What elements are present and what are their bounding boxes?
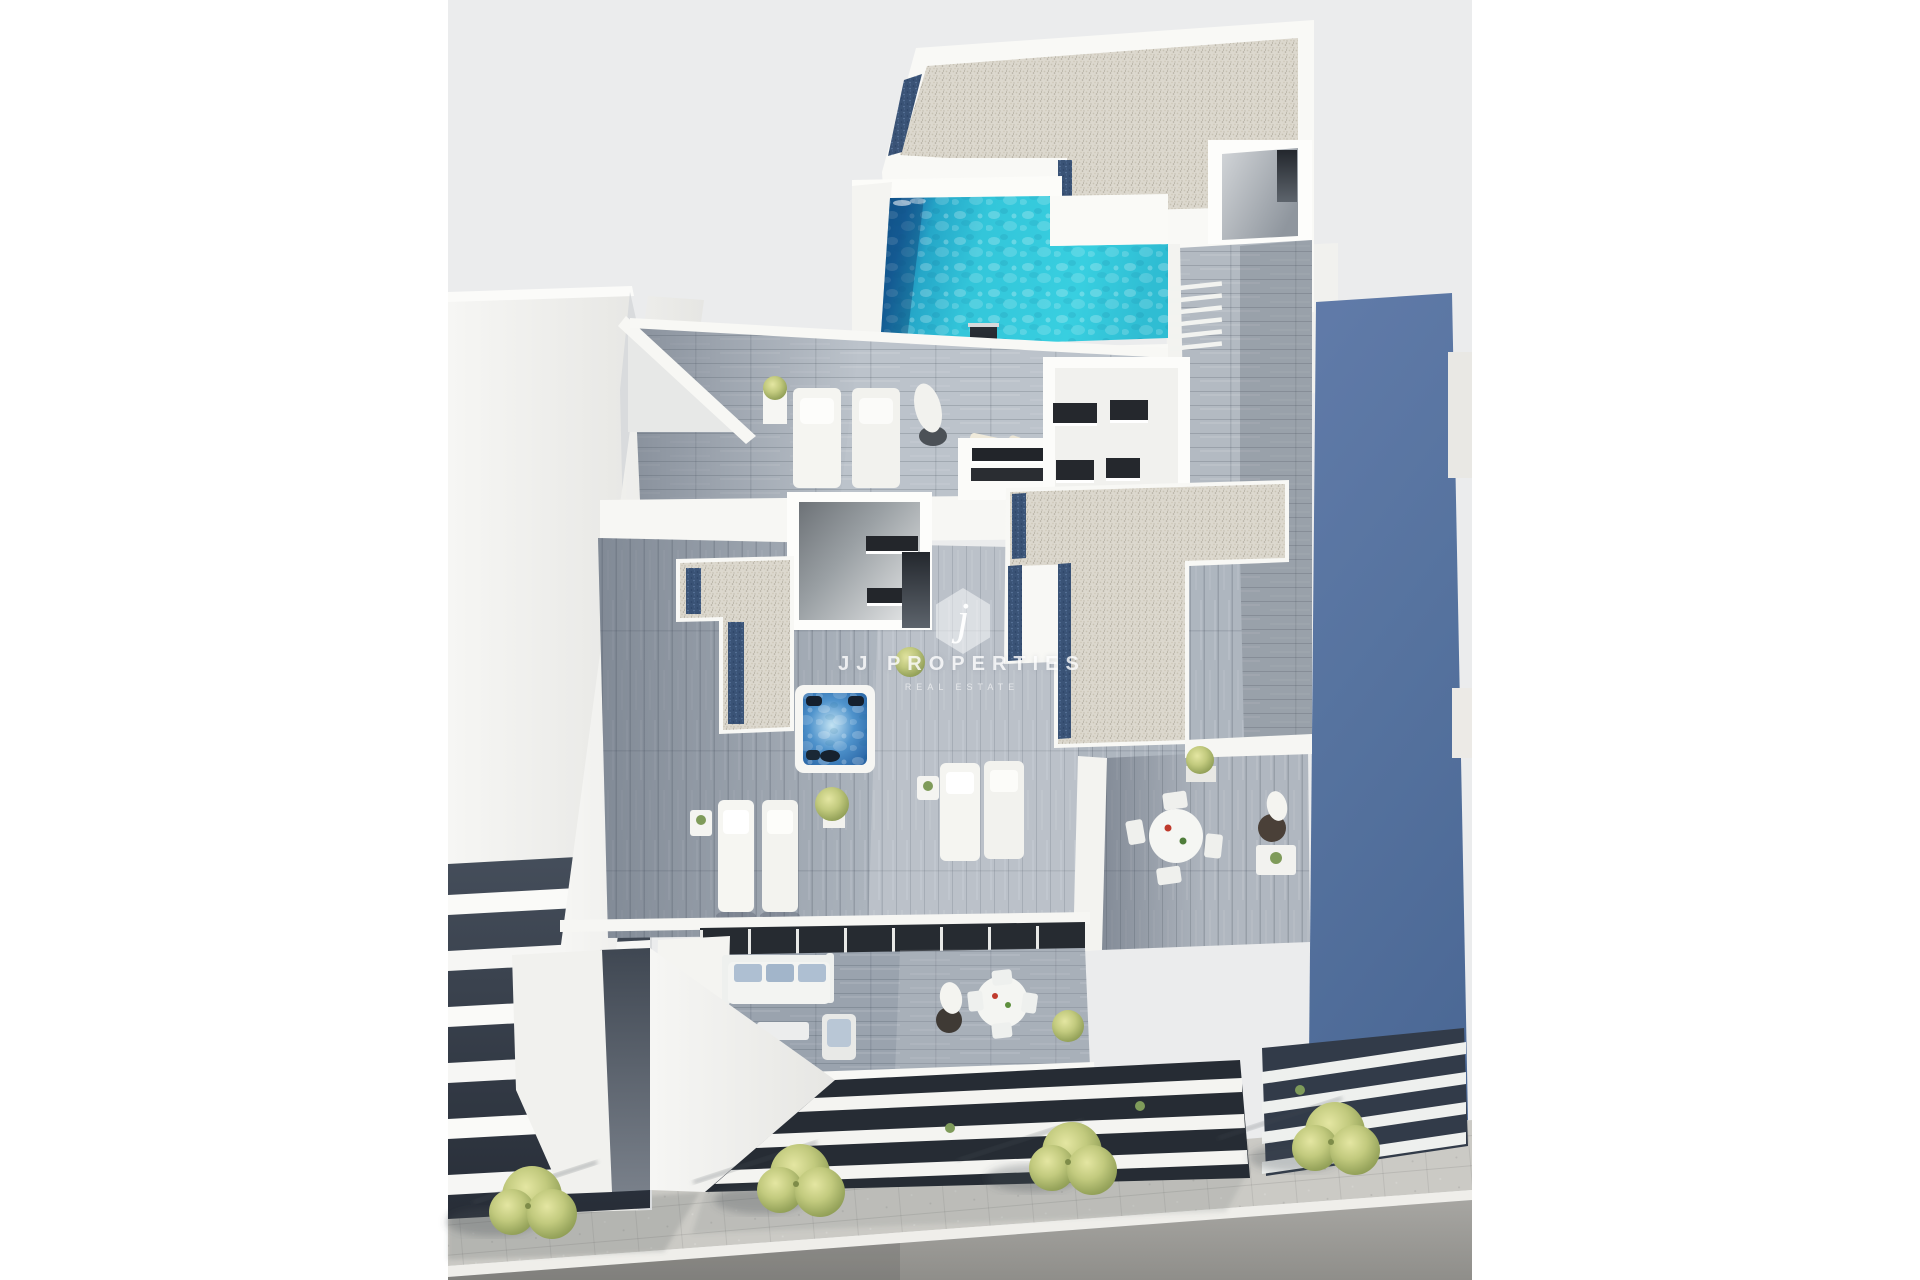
bush-foliage [1067,1145,1117,1195]
table-plant [696,815,706,825]
potted-plant [895,647,925,677]
lounger-pillow [767,810,793,834]
jacuzzi-seat [806,696,822,706]
window-sill [1053,423,1097,426]
skylight-room-west [787,492,932,630]
window-sill [1106,478,1140,481]
potted-plant [1186,746,1214,774]
table-decor-red [992,993,998,999]
pool-step [893,200,911,206]
table-plant [923,781,933,791]
render-page: j JJ PROPERTIES REAL ESTATE [0,0,1920,1280]
potted-plant [815,787,849,821]
gravel-navy-strip [686,568,701,614]
bush-speckle [1065,1159,1071,1165]
gravel-navy-strip [1058,563,1071,739]
lounger-pillow [800,398,834,424]
bush-speckle [793,1181,799,1187]
bush-foliage [527,1189,577,1239]
dining-chair [1156,865,1182,885]
lounger-pillow [946,772,974,794]
room-doorway [902,552,930,628]
stairhead-door [1277,150,1297,202]
jacuzzi-seat [820,750,840,762]
window-slit [1110,400,1148,420]
window-slit [1053,403,1097,423]
window-slit [971,468,1054,481]
table-decor-green [1180,838,1187,845]
lounger-pillow [723,810,749,834]
table-plant [1270,852,1282,864]
dining-terrace [1073,734,1312,952]
bush-foliage [1330,1125,1380,1175]
bush-speckle [525,1203,531,1209]
lounger-pillow [859,398,893,424]
gravel-surface [1058,558,1185,744]
gravel-navy-strip [1008,565,1022,661]
window-slit [866,536,918,551]
right-building-notch [1448,352,1472,478]
window-sill [1110,420,1148,423]
table-decor-red [1165,825,1172,832]
dining-chair [1021,992,1039,1014]
round-dining-table [1149,809,1203,863]
jacuzzi-seat [848,696,864,706]
sofa-cushion [798,964,826,982]
skylight-room-east [1043,357,1190,502]
dining-chair [991,969,1012,986]
gravel-surface [1010,484,1285,566]
dining-chair [991,1022,1012,1039]
right-building-notch [1452,688,1472,758]
table-decor-green [1005,1002,1011,1008]
dining-chair [1162,790,1188,810]
window-sill [1056,480,1094,483]
gravel-navy-strip [1012,493,1026,559]
balcony-plant [1295,1085,1305,1095]
dining-chair [967,990,984,1011]
window-slit [1106,458,1140,478]
lounger-pillow [990,770,1018,792]
daybed-cushion [827,1019,851,1047]
potted-plant [1052,1010,1084,1042]
balcony-plant [1135,1101,1145,1111]
bush-foliage [795,1167,845,1217]
jacuzzi [795,685,875,773]
gravel-navy-strip [728,622,744,724]
sofa-cushion [766,964,794,982]
sofa-cushion [734,964,762,982]
potted-plant [763,376,787,400]
pool-step [910,198,926,204]
dining-chair [1204,833,1223,859]
architectural-render [0,0,1920,1280]
chimney-cap [968,323,999,327]
stairhead-structure [1208,140,1312,244]
balcony-plant [945,1123,955,1133]
pool-deck-notch [1050,194,1168,246]
bush-speckle [1328,1139,1334,1145]
jacuzzi-seat [806,750,820,760]
window-slit [1056,460,1094,480]
